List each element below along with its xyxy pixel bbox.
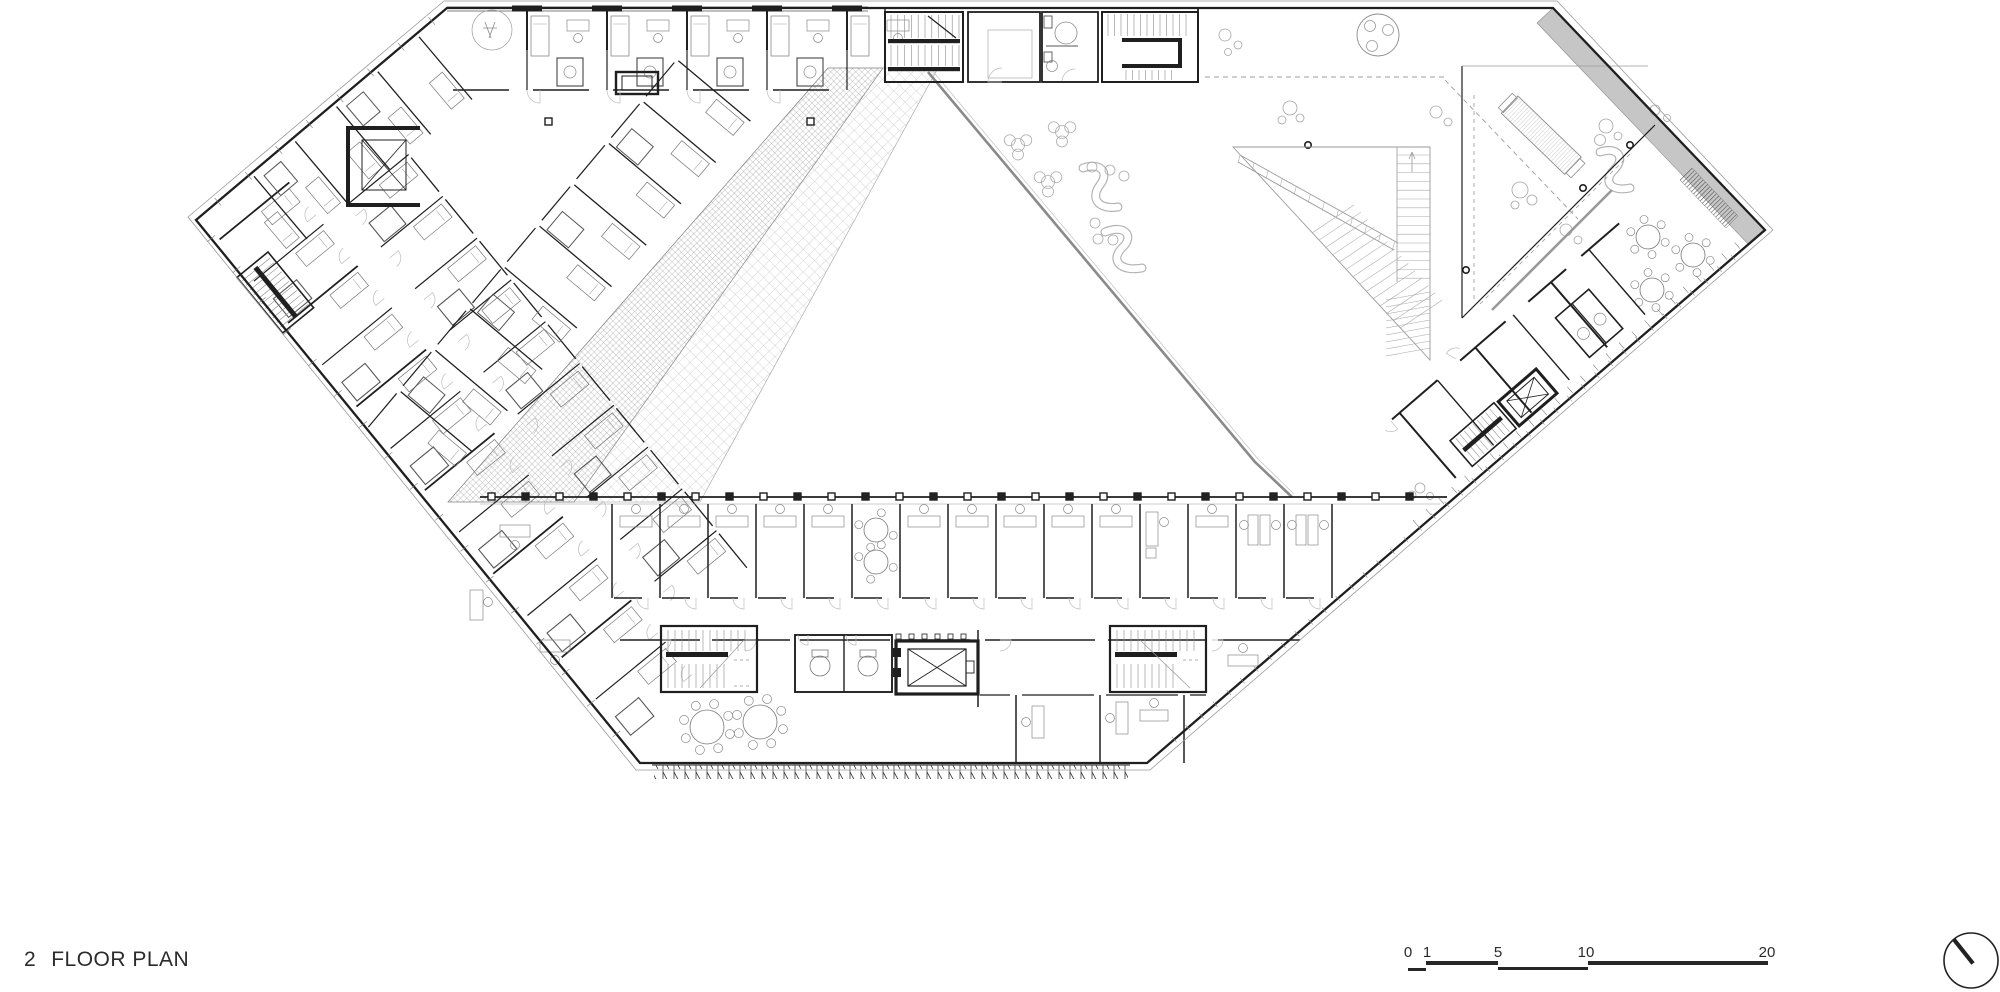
scale-segment bbox=[1588, 961, 1768, 965]
terrace-top-right bbox=[1205, 8, 1765, 312]
bottom-facade-ticks bbox=[652, 765, 1130, 779]
office-band-bottom bbox=[470, 493, 1447, 763]
scale-segment bbox=[1408, 968, 1426, 971]
floor-number: 2 bbox=[24, 948, 36, 971]
scale-tick-label: 1 bbox=[1423, 944, 1431, 961]
north-arrow-icon bbox=[1940, 929, 2000, 992]
drawing-title: 2FLOOR PLAN bbox=[24, 948, 189, 972]
right-wing bbox=[1344, 163, 1740, 526]
floor-plan-drawing bbox=[0, 0, 2000, 992]
scale-segment bbox=[1426, 961, 1498, 965]
amphitheater-triangle bbox=[1233, 147, 1442, 360]
stair-cores-top bbox=[885, 8, 1198, 82]
drawing-title-text: FLOOR PLAN bbox=[51, 948, 189, 971]
scale-tick-label: 0 bbox=[1404, 944, 1412, 961]
architectural-sheet: 2FLOOR PLAN 0 1 5 10 20 bbox=[0, 0, 2000, 992]
roof-hatch-band bbox=[448, 68, 938, 502]
scale-tick-label: 20 bbox=[1759, 944, 1776, 961]
scale-segment bbox=[1498, 967, 1588, 970]
scale-tick-label: 5 bbox=[1494, 944, 1502, 961]
scale-tick-label: 10 bbox=[1578, 944, 1595, 961]
